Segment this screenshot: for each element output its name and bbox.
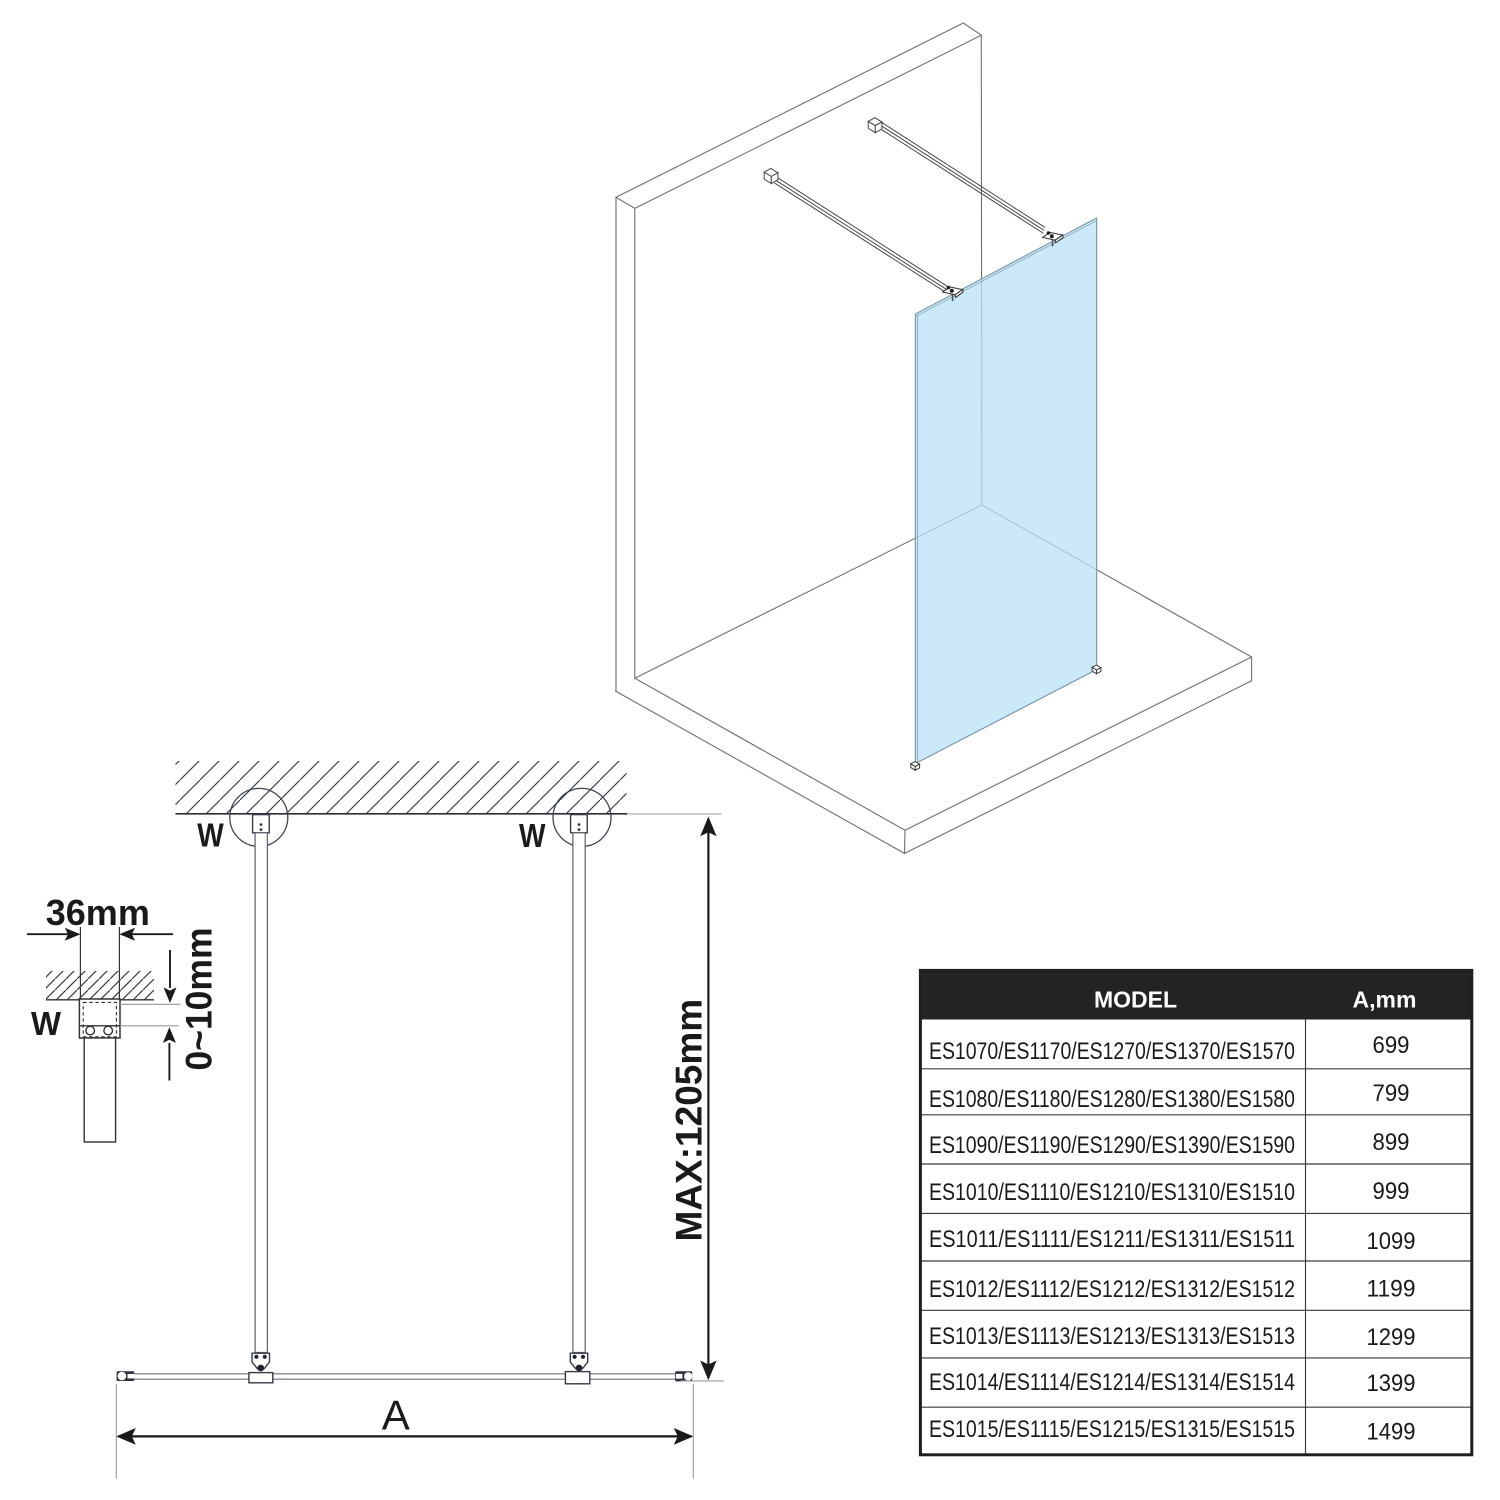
svg-text:36mm: 36mm xyxy=(46,892,150,933)
svg-text:W: W xyxy=(197,816,224,853)
svg-text:ES1012/ES1112/ES1212/ES1312/ES: ES1012/ES1112/ES1212/ES1312/ES1512 xyxy=(929,1276,1295,1303)
svg-text:ES1014/ES1114/ES1214/ES1314/ES: ES1014/ES1114/ES1214/ES1314/ES1514 xyxy=(929,1369,1295,1396)
svg-text:1099: 1099 xyxy=(1367,1228,1416,1255)
svg-text:ES1090/ES1190/ES1290/ES1390/ES: ES1090/ES1190/ES1290/ES1390/ES1590 xyxy=(929,1132,1295,1159)
svg-text:1299: 1299 xyxy=(1367,1324,1416,1351)
svg-text:ES1080/ES1180/ES1280/ES1380/ES: ES1080/ES1180/ES1280/ES1380/ES1580 xyxy=(929,1086,1295,1113)
svg-text:MAX:1205mm: MAX:1205mm xyxy=(669,999,710,1242)
svg-text:A: A xyxy=(382,1392,410,1439)
svg-text:1199: 1199 xyxy=(1367,1275,1416,1302)
svg-text:1399: 1399 xyxy=(1367,1370,1416,1397)
svg-text:MODEL: MODEL xyxy=(1094,987,1177,1013)
svg-text:899: 899 xyxy=(1373,1129,1410,1156)
svg-text:W: W xyxy=(31,1005,62,1042)
svg-text:799: 799 xyxy=(1373,1080,1410,1107)
svg-text:ES1010/ES1110/ES1210/ES1310/ES: ES1010/ES1110/ES1210/ES1310/ES1510 xyxy=(929,1179,1295,1206)
svg-text:ES1013/ES1113/ES1213/ES1313/ES: ES1013/ES1113/ES1213/ES1313/ES1513 xyxy=(929,1323,1295,1350)
svg-text:ES1015/ES1115/ES1215/ES1315/ES: ES1015/ES1115/ES1215/ES1315/ES1515 xyxy=(929,1416,1295,1443)
svg-text:W: W xyxy=(519,817,546,854)
svg-text:A,mm: A,mm xyxy=(1353,987,1417,1013)
svg-text:0~10mm: 0~10mm xyxy=(179,928,220,1071)
svg-text:ES1011/ES1111/ES1211/ES1311/ES: ES1011/ES1111/ES1211/ES1311/ES1511 xyxy=(929,1226,1295,1253)
svg-text:ES1070/ES1170/ES1270/ES1370/ES: ES1070/ES1170/ES1270/ES1370/ES1570 xyxy=(929,1038,1295,1065)
svg-text:999: 999 xyxy=(1373,1178,1410,1205)
svg-text:699: 699 xyxy=(1373,1032,1410,1059)
svg-text:1499: 1499 xyxy=(1367,1419,1416,1446)
